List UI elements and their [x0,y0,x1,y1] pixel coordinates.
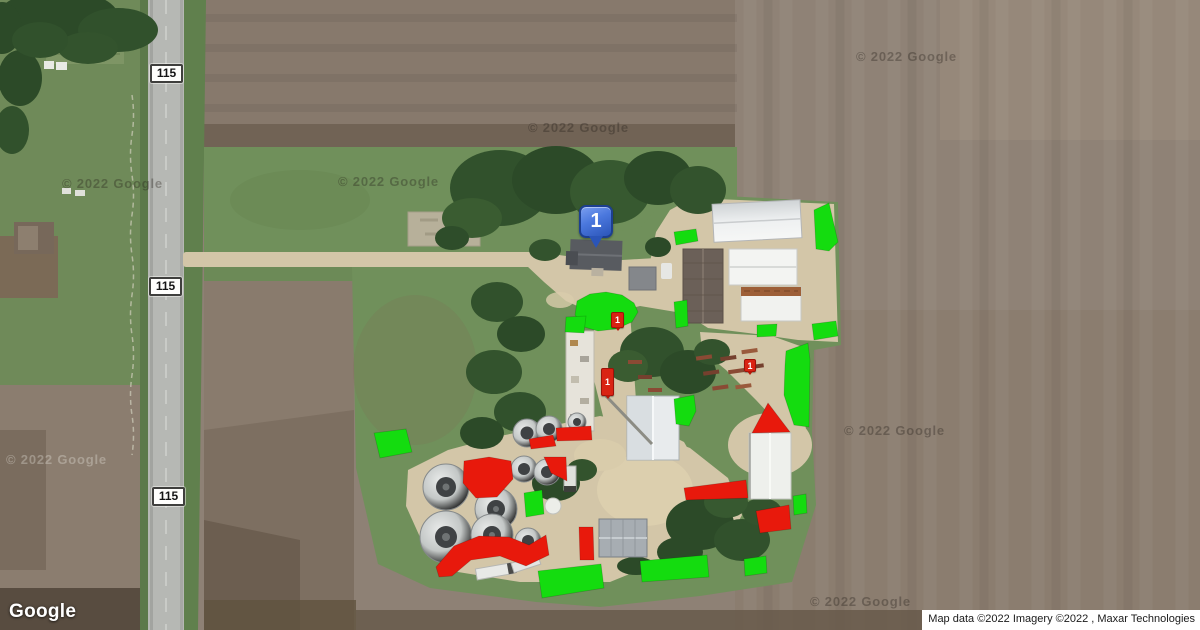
map-viewport[interactable]: 1 115115115© 2022 Google© 2022 Google© 2… [0,0,1200,630]
attribution-text: Map data ©2022 Imagery ©2022 , Maxar Tec… [922,610,1200,630]
imagery-watermark: © 2022 Google [338,174,439,189]
primary-marker[interactable]: 1 [579,205,613,238]
imagery-watermark: © 2022 Google [6,452,107,467]
route-shield: 115 [152,487,185,506]
route-shield: 115 [149,277,182,296]
imagery-watermark: © 2022 Google [810,594,911,609]
imagery-watermark: © 2022 Google [844,423,945,438]
annotation-layer: 1 115115115© 2022 Google© 2022 Google© 2… [0,0,1200,630]
mini-marker[interactable]: 1 [744,359,756,372]
mini-marker[interactable]: 1 [611,312,624,328]
route-shield: 115 [150,64,183,83]
mini-marker[interactable]: 1 [601,368,614,396]
google-logo[interactable]: Google [9,601,76,623]
imagery-watermark: © 2022 Google [528,120,629,135]
imagery-watermark: © 2022 Google [856,49,957,64]
imagery-watermark: © 2022 Google [62,176,163,191]
